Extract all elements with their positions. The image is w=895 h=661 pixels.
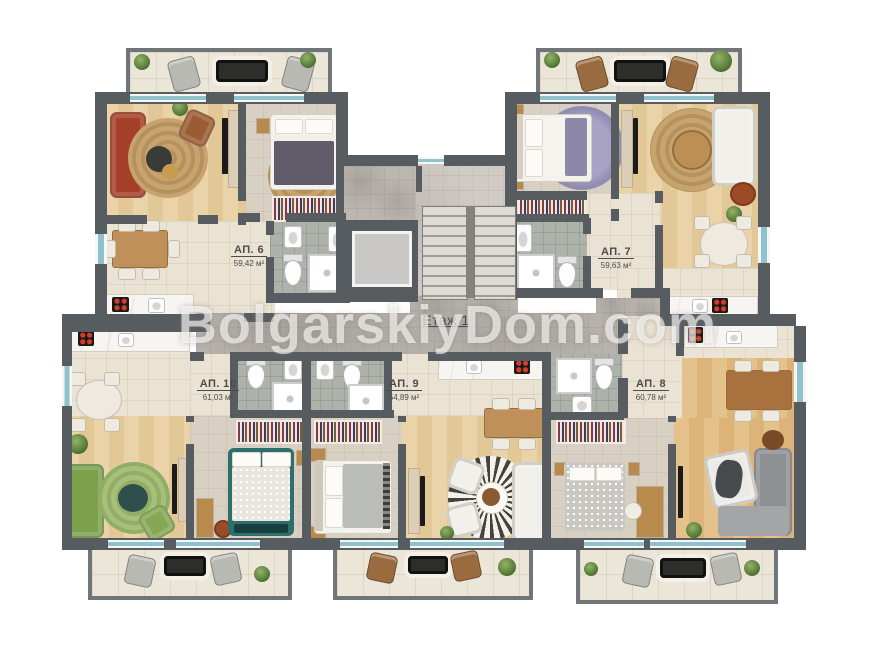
wall [548,412,624,420]
chair [70,372,86,386]
coffee-table-top [482,488,500,506]
wardrobe [556,420,626,444]
window [108,540,164,548]
wall [186,416,194,422]
wall [398,444,406,540]
plant-icon [686,522,702,538]
wall [668,444,676,540]
dresser [196,498,214,538]
balcony-table [216,60,268,82]
floor-plan: АП. 6 59,42 м² АП. 7 59,63 м² АП. 8 60,7… [0,0,895,661]
chair [104,372,120,386]
apartment-label-ap8: АП. 8 60,78 м² [618,374,684,402]
watermark: BolgarskiyDom.com [95,294,800,364]
wall [758,92,770,227]
chair [736,216,752,230]
double-bed [270,114,338,190]
wall [246,213,260,222]
apartment-area: 59,42 м² [214,259,284,268]
apartment-name: АП. 10 [197,378,239,391]
balcony-chair [365,551,398,584]
desk-chair [624,502,642,520]
nightstand [256,118,270,134]
chair [518,438,536,450]
double-bed [228,448,294,536]
wall [302,352,311,540]
wall [336,155,418,166]
chair [734,410,752,422]
wall [238,103,246,201]
stove [78,331,94,346]
apartment-area: 59,63 м² [582,261,650,270]
dining-table [112,230,168,268]
chair [492,438,510,450]
apartment-name: АП. 7 [598,246,634,259]
window [794,362,806,402]
balcony-table [164,556,206,576]
balcony-chair [449,549,482,582]
stair-flight [474,206,516,300]
staircase [420,202,514,300]
window [234,94,304,102]
double-bed [564,462,626,532]
wall [655,191,663,203]
shower [517,254,555,292]
wall [186,444,194,540]
chair [518,398,536,410]
balcony-table [660,558,706,578]
tv-stand [621,110,633,188]
wall [336,92,348,160]
wall [542,352,551,540]
balcony-door [176,540,260,548]
balcony-door [410,540,504,548]
wall [655,225,663,290]
chair [70,418,86,432]
dining-table [484,408,544,438]
wall [505,191,587,200]
window [644,94,714,102]
window [584,540,644,548]
window [95,234,107,264]
wall [230,410,394,418]
apartment-name: АП. 6 [231,244,267,257]
tv [678,466,683,518]
apartment-label-ap7: АП. 7 59,63 м² [582,242,650,270]
balcony-chair [209,551,243,586]
plant-icon [498,558,516,576]
wall [286,213,346,222]
wall [416,166,422,192]
window [340,540,398,548]
tv-stand [408,468,420,534]
window [130,94,206,102]
tv [420,476,425,526]
chair [492,398,510,410]
wall [266,221,274,235]
double-bed [314,460,392,534]
balcony-door [650,540,746,548]
wall [611,209,619,221]
plant-icon [254,566,270,582]
wardrobe [314,420,382,444]
window [758,227,770,263]
wall [794,402,806,548]
apartment-area: 54,89 м² [372,393,436,402]
wall [611,103,619,199]
apartment-label-ap10: АП. 10 61,03 м² [182,374,254,402]
side-tray [162,164,178,180]
entrance-door [418,157,444,164]
chair [694,254,710,268]
apartment-area: 60,78 м² [618,393,684,402]
rug [718,506,788,536]
plant-icon [300,52,316,68]
wardrobe [236,420,308,444]
plant-icon [710,50,732,72]
pouf [730,182,756,206]
wall [505,214,589,222]
stair-flight [422,206,468,300]
cabinet [284,226,302,248]
wall [238,213,246,225]
balcony-table [614,60,666,82]
wall [62,332,72,366]
side-table [762,430,784,450]
wall [95,92,107,234]
stair-rail [466,206,474,298]
apartment-name: АП. 8 [633,378,669,391]
wall [198,215,218,224]
chair [142,268,160,280]
coffee-table [118,484,148,512]
tv [633,118,638,174]
coffee-table [672,130,712,170]
balcony-chair [709,551,743,586]
tv [222,118,228,174]
wall [62,406,72,540]
dining-table [76,380,122,420]
elevator [340,220,418,292]
chair [694,216,710,230]
double-bed [514,114,592,182]
chair [168,240,180,258]
apartment-label-ap6: АП. 6 59,42 м² [214,240,284,268]
tv [172,464,177,514]
wall [398,416,406,422]
dining-table [726,370,792,410]
wall [95,215,147,224]
floor-vestibule [342,166,416,220]
chair [104,418,120,432]
wall [583,218,591,234]
apartment-label-ap9: АП. 9 54,89 м² [372,374,436,402]
sofa [712,106,756,186]
chair [118,268,136,280]
apartment-area: 61,03 м² [182,393,254,402]
nightstand [628,462,640,476]
chair [762,410,780,422]
elevator-cab [352,231,412,287]
plant-icon [134,54,150,70]
window [62,366,72,406]
wall [668,416,676,422]
plant-icon [744,560,760,576]
chair [736,254,752,268]
window [540,94,616,102]
balcony-table [408,556,448,574]
apartment-name: АП. 9 [386,378,422,391]
plant-icon [544,52,560,68]
plant-icon [584,562,598,576]
